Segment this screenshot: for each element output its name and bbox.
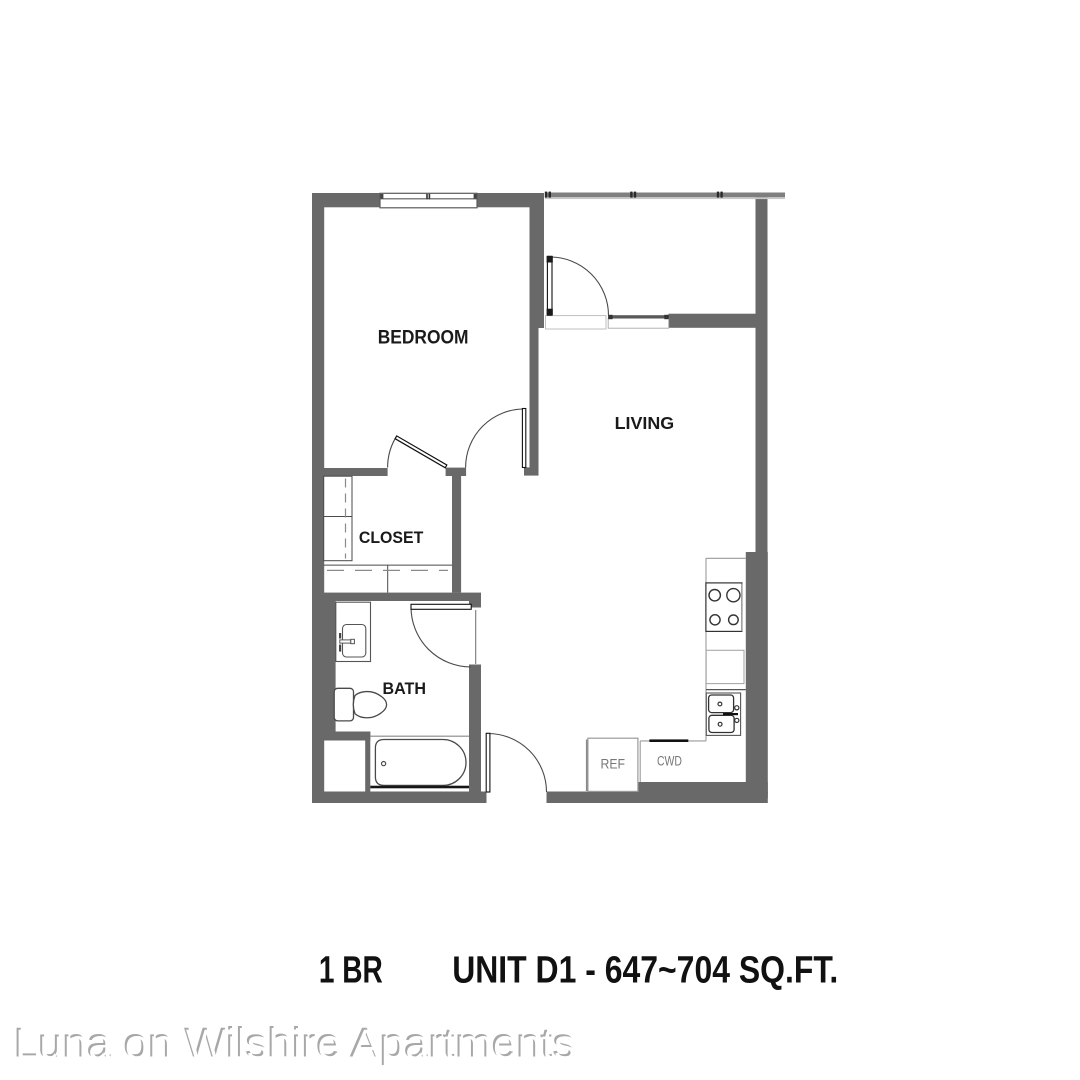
svg-text:BATH: BATH — [383, 680, 427, 698]
svg-text:UNIT D1 - 647~704 SQ.FT.: UNIT D1 - 647~704 SQ.FT. — [452, 950, 838, 992]
svg-text:REF: REF — [601, 757, 626, 772]
svg-text:LIVING: LIVING — [615, 413, 675, 433]
svg-text:CWD: CWD — [657, 754, 682, 769]
svg-text:CLOSET: CLOSET — [359, 529, 423, 547]
svg-text:BEDROOM: BEDROOM — [378, 327, 469, 348]
svg-text:Luna on Wilshire Apartments: Luna on Wilshire Apartments — [15, 1021, 576, 1068]
svg-text:1 BR: 1 BR — [319, 950, 383, 992]
